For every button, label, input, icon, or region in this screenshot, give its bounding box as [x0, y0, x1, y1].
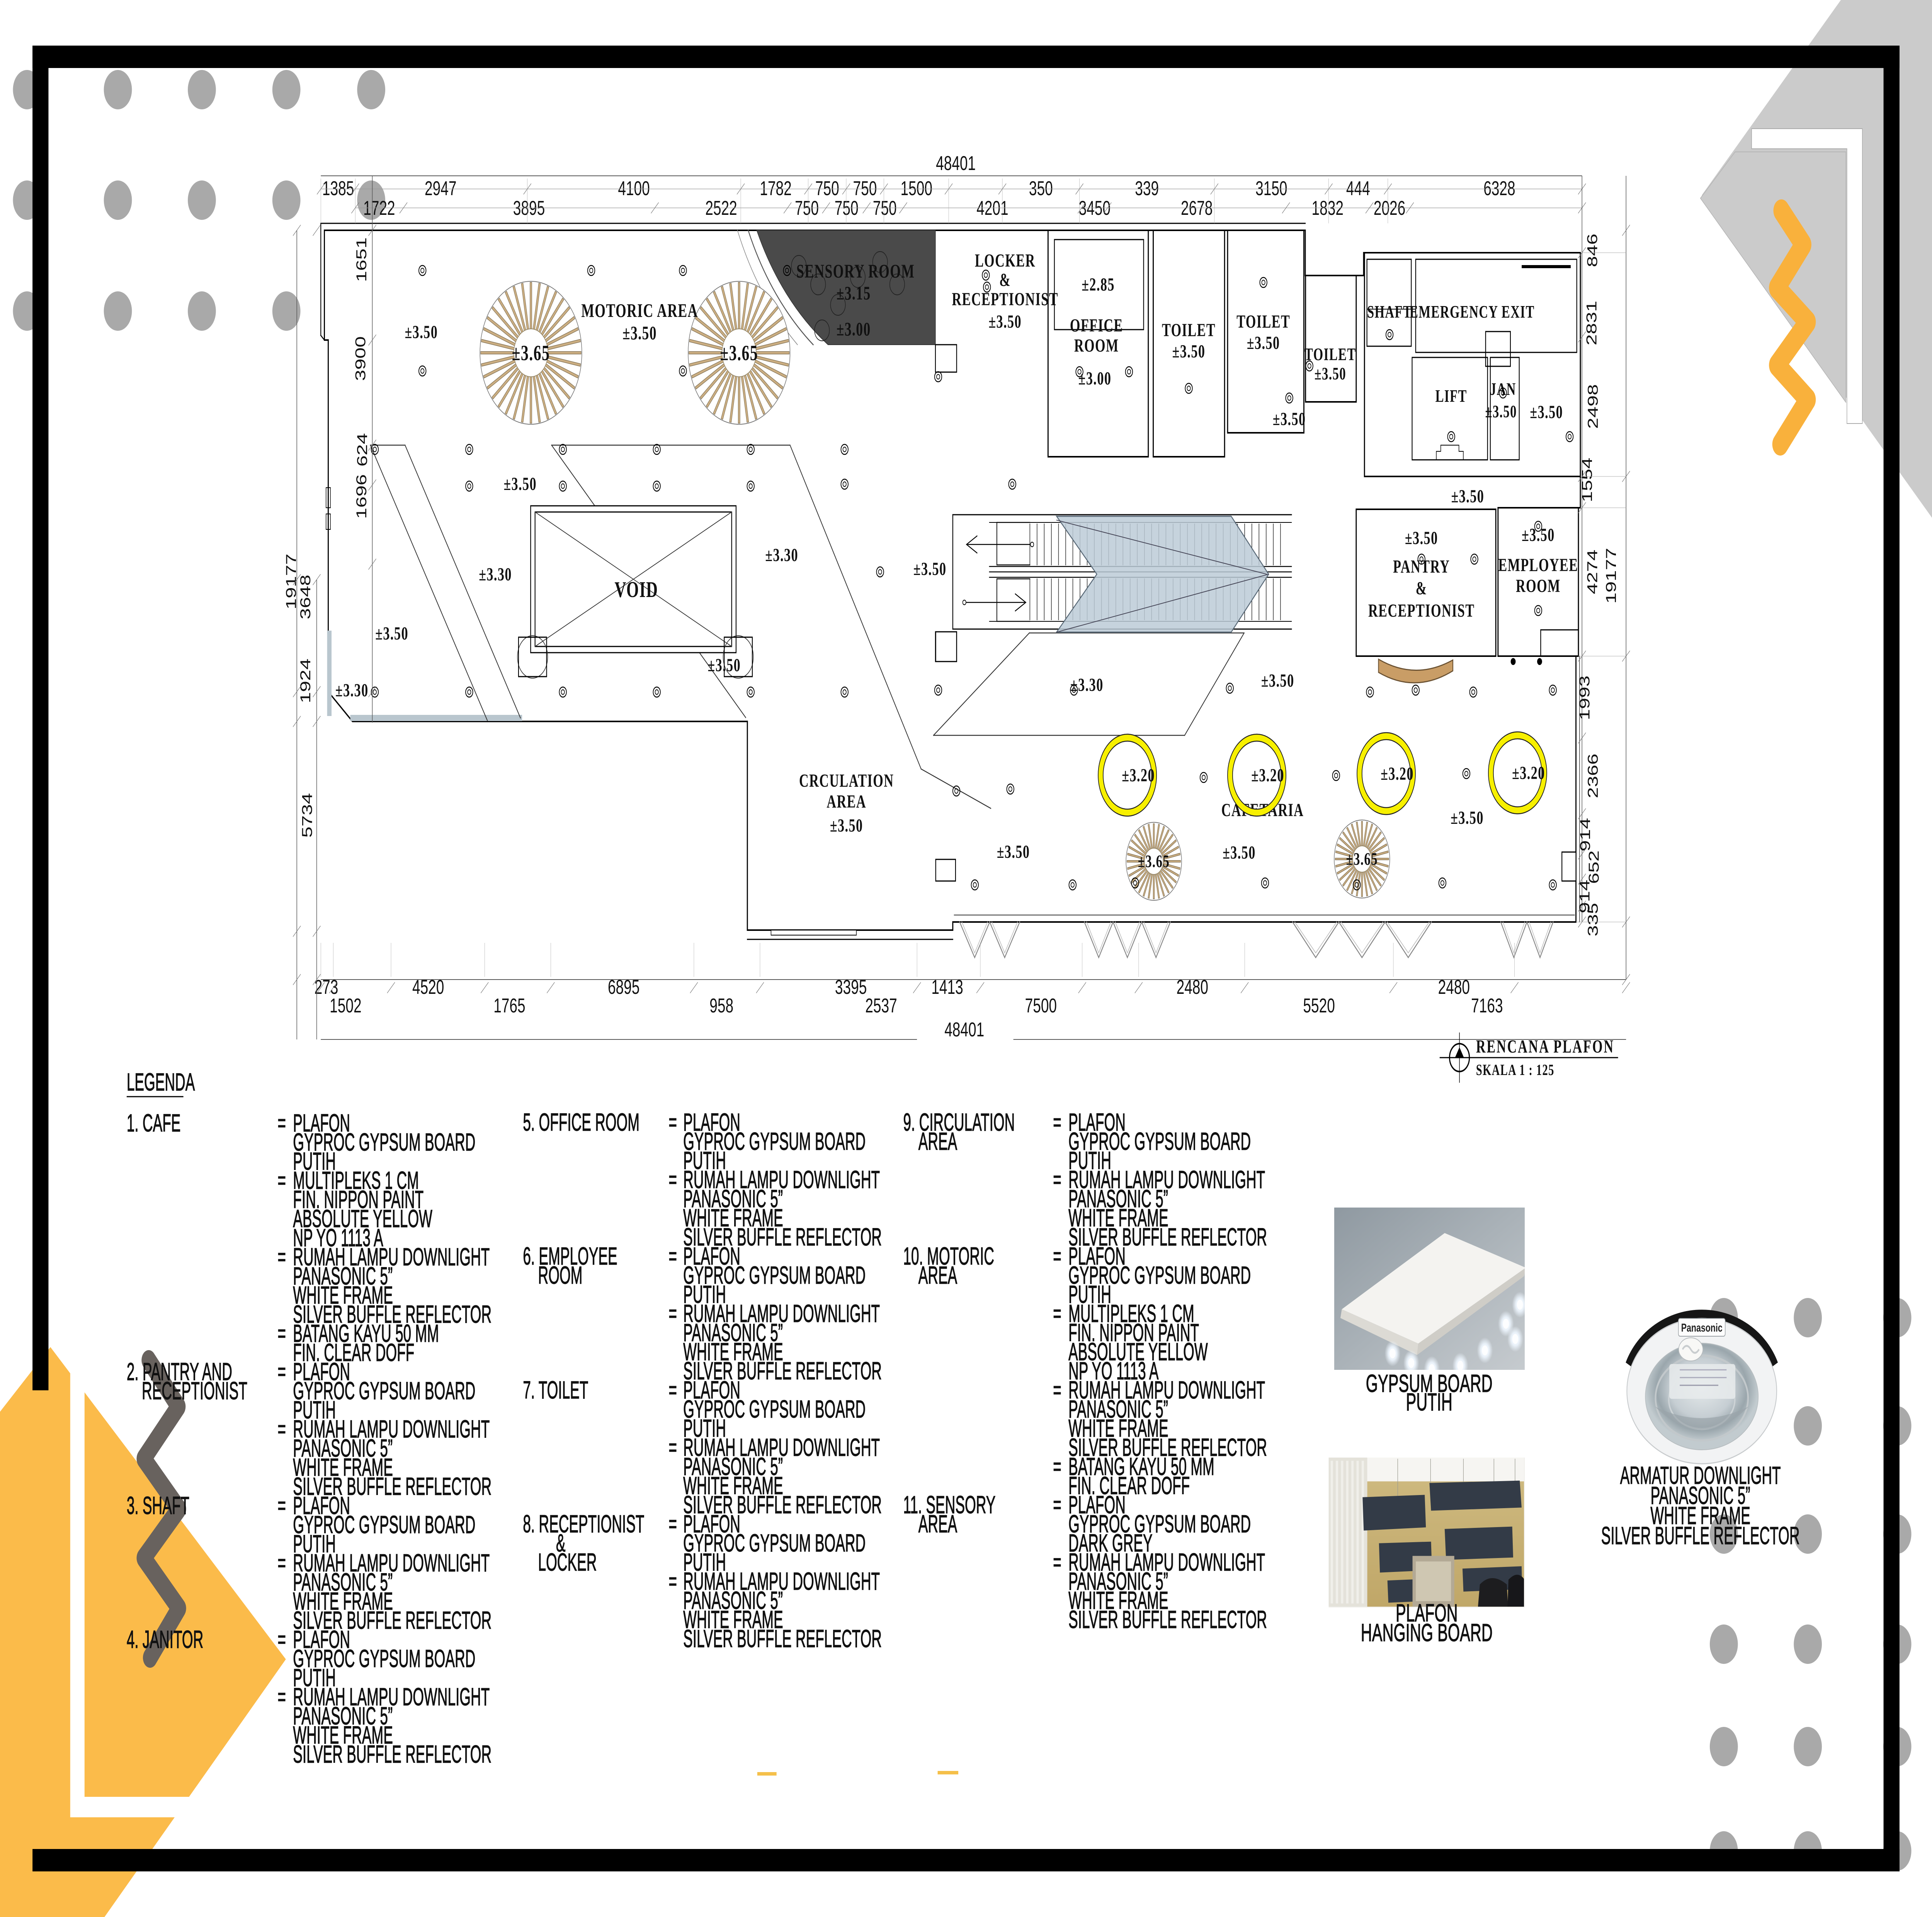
svg-text:1413: 1413 [931, 976, 963, 998]
svg-text:±3.50: ±3.50 [1405, 528, 1438, 549]
svg-text:RECEPTIONIST: RECEPTIONIST [952, 289, 1058, 310]
svg-text:2480: 2480 [1177, 976, 1208, 998]
svg-text:MOTORIC AREA: MOTORIC AREA [581, 300, 698, 321]
svg-text:6328: 6328 [1483, 177, 1515, 200]
svg-text:914: 914 [1577, 818, 1593, 852]
svg-text:JAN: JAN [1490, 379, 1516, 399]
svg-text:=: = [277, 1320, 286, 1347]
svg-text:±3.20: ±3.20 [1122, 765, 1155, 786]
svg-text:AREA: AREA [827, 792, 866, 812]
svg-text:=: = [668, 1377, 677, 1404]
svg-text:7500: 7500 [1025, 994, 1057, 1017]
svg-text:3150: 3150 [1255, 177, 1287, 200]
svg-text:1. CAFE: 1. CAFE [127, 1110, 181, 1137]
svg-text:335: 335 [1585, 903, 1601, 937]
svg-text:4274: 4274 [1584, 549, 1600, 594]
svg-text:1502: 1502 [330, 994, 361, 1017]
svg-text:±3.50: ±3.50 [503, 474, 537, 495]
svg-text:=: = [277, 1110, 286, 1137]
svg-text:OFFICE: OFFICE [1070, 316, 1123, 336]
svg-text:48401: 48401 [944, 1018, 984, 1041]
svg-text:SKALA 1 : 125: SKALA 1 : 125 [1476, 1061, 1554, 1078]
svg-text:±3.15: ±3.15 [837, 282, 871, 304]
svg-text:=: = [277, 1626, 286, 1653]
svg-text:ROOM: ROOM [538, 1262, 583, 1289]
svg-text:846: 846 [1584, 234, 1600, 267]
svg-text:7. TOILET: 7. TOILET [523, 1377, 588, 1404]
svg-text:2480: 2480 [1438, 976, 1470, 998]
svg-text:=: = [277, 1167, 286, 1194]
svg-text:LIFT: LIFT [1435, 386, 1467, 406]
svg-text:PANTRY: PANTRY [1393, 557, 1450, 577]
svg-text:RENCANA PLAFON: RENCANA PLAFON [1476, 1037, 1614, 1057]
svg-text:6895: 6895 [608, 976, 639, 998]
svg-text:ROOM: ROOM [1074, 336, 1119, 356]
svg-text:±3.30: ±3.30 [479, 565, 512, 585]
svg-text:=: = [1053, 1166, 1061, 1194]
svg-text:RECEPTIONIST: RECEPTIONIST [1368, 601, 1475, 621]
svg-text:±3.50: ±3.50 [913, 559, 947, 580]
svg-text:EMERGENCY EXIT: EMERGENCY EXIT [1410, 302, 1535, 322]
svg-text:=: = [668, 1568, 677, 1596]
svg-text:=: = [277, 1684, 286, 1711]
svg-text:±3.50: ±3.50 [405, 322, 438, 343]
svg-text:TOILET: TOILET [1304, 344, 1356, 364]
svg-text:=: = [668, 1510, 677, 1538]
svg-text:ROOM: ROOM [1516, 576, 1561, 597]
svg-text:1765: 1765 [493, 994, 525, 1017]
svg-text:3900: 3900 [352, 336, 369, 381]
svg-text:±3.65: ±3.65 [1346, 849, 1378, 869]
svg-text:1924: 1924 [298, 658, 314, 703]
svg-text:=: = [1053, 1243, 1061, 1270]
svg-text:±3.50: ±3.50 [707, 655, 741, 676]
svg-text:2947: 2947 [425, 177, 456, 200]
svg-text:±3.50: ±3.50 [1451, 808, 1484, 828]
svg-text:7163: 7163 [1471, 994, 1503, 1017]
svg-text:=: = [1053, 1300, 1061, 1328]
svg-text:3395: 3395 [835, 976, 867, 998]
svg-text:±3.30: ±3.30 [335, 680, 369, 701]
svg-text:±3.00: ±3.00 [837, 318, 871, 340]
svg-text:750: 750 [815, 177, 839, 200]
svg-text:=: = [1053, 1453, 1061, 1481]
svg-text:SILVER BUFFLE REFLECTOR: SILVER BUFFLE REFLECTOR [293, 1741, 492, 1768]
svg-text:5520: 5520 [1303, 994, 1335, 1017]
svg-text:1500: 1500 [901, 177, 932, 200]
svg-text:&: & [999, 270, 1011, 291]
svg-text:±3.50: ±3.50 [1315, 364, 1346, 384]
svg-text:624: 624 [354, 433, 370, 467]
svg-text:8. RECEPTIONIST: 8. RECEPTIONIST [523, 1510, 644, 1538]
svg-text:±3.50: ±3.50 [1451, 486, 1485, 507]
svg-text:=: = [277, 1358, 286, 1386]
svg-text:±3.20: ±3.20 [1381, 764, 1414, 784]
svg-text:±2.85: ±2.85 [1082, 275, 1115, 295]
svg-text:=: = [1053, 1109, 1061, 1136]
svg-text:SENSORY ROOM: SENSORY ROOM [796, 260, 915, 282]
svg-text:±3.50: ±3.50 [988, 312, 1022, 332]
svg-text:LEGENDA: LEGENDA [127, 1069, 195, 1096]
svg-text:±3.20: ±3.20 [1512, 763, 1545, 784]
svg-text:±3.50: ±3.50 [1530, 402, 1563, 423]
svg-text:2537: 2537 [865, 994, 897, 1017]
svg-text:1696: 1696 [353, 474, 369, 519]
svg-text:4100: 4100 [618, 177, 650, 200]
svg-text:2498: 2498 [1585, 384, 1601, 429]
svg-text:AREA: AREA [918, 1262, 957, 1289]
svg-text:444: 444 [1346, 177, 1370, 200]
svg-text:VOID: VOID [615, 577, 658, 602]
svg-text:HANGING BOARD: HANGING BOARD [1361, 1619, 1493, 1647]
svg-text:3648: 3648 [298, 575, 314, 619]
svg-text:Panasonic: Panasonic [1681, 1321, 1723, 1334]
svg-text:1651: 1651 [353, 237, 369, 282]
svg-text:5734: 5734 [299, 793, 315, 838]
svg-text:1385: 1385 [322, 177, 354, 200]
svg-text:±3.50: ±3.50 [1485, 401, 1517, 422]
svg-text:CRCULATION: CRCULATION [799, 771, 894, 791]
svg-text:=: = [277, 1416, 286, 1443]
svg-text:±3.65: ±3.65 [720, 341, 758, 365]
svg-text:=: = [668, 1166, 677, 1194]
svg-text:&: & [1416, 578, 1427, 599]
svg-text:=: = [1053, 1377, 1061, 1404]
svg-text:19177: 19177 [1603, 548, 1619, 604]
svg-text:2831: 2831 [1583, 301, 1600, 345]
svg-text:SILVER BUFFLE REFLECTOR: SILVER BUFFLE REFLECTOR [683, 1625, 882, 1653]
svg-text:5. OFFICE ROOM: 5. OFFICE ROOM [523, 1109, 639, 1136]
svg-text:±3.50: ±3.50 [375, 624, 408, 644]
svg-text:19177: 19177 [283, 554, 299, 610]
svg-text:1993: 1993 [1577, 675, 1593, 720]
svg-text:±3.65: ±3.65 [1138, 851, 1170, 871]
svg-text:=: = [668, 1243, 677, 1270]
svg-text:=: = [668, 1300, 677, 1328]
svg-text:TOILET: TOILET [1162, 320, 1216, 341]
svg-text:AREA: AREA [918, 1510, 957, 1538]
svg-text:4. JANITOR: 4. JANITOR [127, 1626, 203, 1653]
svg-text:1782: 1782 [760, 177, 791, 200]
svg-text:PUTIH: PUTIH [1406, 1389, 1452, 1416]
svg-text:±3.20: ±3.20 [1251, 765, 1284, 786]
svg-text:=: = [277, 1243, 286, 1271]
svg-text:LOCKER: LOCKER [538, 1549, 597, 1576]
svg-text:958: 958 [709, 994, 733, 1017]
svg-text:±3.30: ±3.30 [765, 545, 798, 566]
svg-text:±3.50: ±3.50 [1522, 525, 1555, 546]
svg-text:=: = [668, 1109, 677, 1136]
svg-text:±3.50: ±3.50 [1273, 409, 1306, 430]
svg-text:350: 350 [1029, 177, 1053, 200]
svg-text:2366: 2366 [1585, 754, 1601, 798]
svg-text:SHAFT: SHAFT [1367, 302, 1412, 322]
svg-text:652: 652 [1586, 850, 1602, 884]
svg-text:=: = [668, 1434, 677, 1461]
svg-text:1554: 1554 [1579, 458, 1595, 502]
svg-text:SILVER BUFFLE REFLECTOR: SILVER BUFFLE REFLECTOR [1601, 1522, 1800, 1550]
svg-text:=: = [1053, 1549, 1061, 1576]
svg-text:±3.50: ±3.50 [830, 816, 863, 836]
svg-text:48401: 48401 [936, 152, 976, 175]
svg-text:±3.50: ±3.50 [1247, 333, 1280, 354]
svg-text:LOCKER: LOCKER [975, 251, 1036, 271]
svg-text:±3.50: ±3.50 [1261, 671, 1294, 691]
svg-text:3. SHAFT: 3. SHAFT [127, 1492, 189, 1520]
svg-text:=: = [277, 1550, 286, 1577]
svg-text:4520: 4520 [412, 976, 444, 998]
svg-text:±3.50: ±3.50 [1223, 843, 1256, 863]
svg-text:339: 339 [1135, 177, 1159, 200]
svg-text:RECEPTIONIST: RECEPTIONIST [142, 1378, 247, 1405]
svg-text:750: 750 [853, 177, 877, 200]
svg-text:SILVER BUFFLE REFLECTOR: SILVER BUFFLE REFLECTOR [1068, 1606, 1267, 1634]
svg-text:EMPLOYEE: EMPLOYEE [1498, 555, 1578, 576]
svg-text:TOILET: TOILET [1236, 312, 1290, 332]
svg-text:±3.50: ±3.50 [997, 842, 1030, 862]
svg-text:±3.50: ±3.50 [622, 322, 657, 344]
svg-text:=: = [1053, 1492, 1061, 1519]
svg-text:±3.50: ±3.50 [1172, 342, 1206, 362]
svg-text:AREA: AREA [918, 1128, 957, 1155]
svg-text:±3.65: ±3.65 [512, 341, 550, 365]
svg-text:=: = [277, 1492, 286, 1520]
